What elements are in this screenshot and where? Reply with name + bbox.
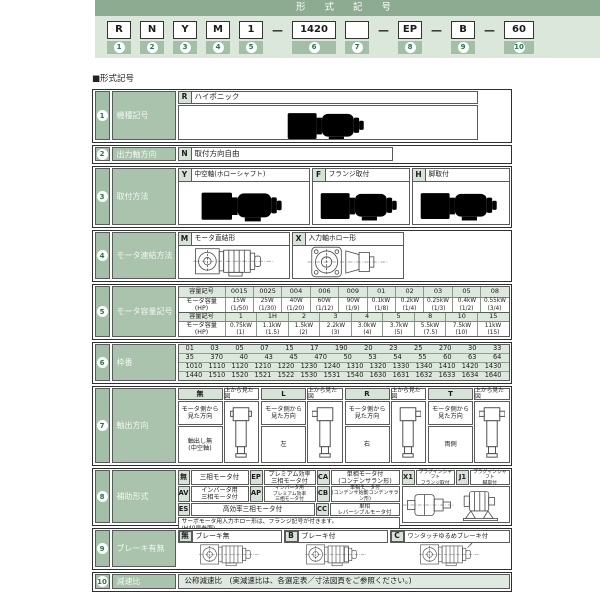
- frame-number: 55: [418, 354, 426, 362]
- option-label: フランジ取付: [326, 169, 409, 181]
- row-label: 軸出方向: [112, 388, 176, 463]
- capacity-power: 0.75kW(1): [225, 322, 257, 336]
- frame-number: 1210: [255, 363, 272, 371]
- row-machine-type: 1 機種記号 R ハイポニック: [92, 89, 512, 143]
- direction-value: 左: [261, 426, 306, 463]
- code-chip: F: [313, 169, 326, 181]
- motor-direct-drawing: [179, 246, 289, 278]
- shaft-option-left: L モータ側から 見た方向 左 上から見た図: [261, 388, 343, 463]
- code-chip: CB: [317, 486, 330, 502]
- plugin-shaft-foot-drawing: [456, 488, 508, 522]
- connection-option-input-hollow: X 入力軸ホロー形: [292, 232, 404, 279]
- capacity-power: 0.55kW(3/4): [480, 298, 508, 312]
- capacity-table: 容量記号 001500250040060090102030508 モータ容量 (…: [178, 286, 510, 337]
- code-unit: EP 8: [398, 21, 422, 54]
- aux-label: インバータ用 三相モータ付: [191, 486, 249, 502]
- frame-number: 1110: [209, 363, 226, 371]
- capacity-code: 08: [480, 287, 508, 296]
- brake-one-touch-drawing: [390, 543, 510, 567]
- capacity-power: 0.2kW(1/4): [395, 298, 423, 312]
- frame-number: 50: [343, 354, 351, 362]
- top-view-header: 上から見た図: [474, 388, 510, 400]
- hyponic-gearmotor-photo: [178, 105, 478, 140]
- code-box: N: [140, 21, 164, 39]
- frame-number: 1520: [232, 372, 249, 380]
- code-unit: 1420 6: [292, 21, 336, 54]
- connection-option-direct: M モータ直結形: [178, 232, 290, 279]
- row-number-cell: 1: [95, 91, 110, 140]
- frame-number: 1340: [416, 363, 433, 371]
- frame-number: 1120: [232, 363, 249, 371]
- code-description: ハイポニック: [192, 91, 478, 104]
- capacity-code: 8: [414, 313, 446, 322]
- model-code-line: R 1 N 2 Y 3 M 4 1 5 — 1420 6 7 — EP 8 — …: [95, 16, 600, 58]
- aux-label: 単相モータ付 (コンデンサラン形): [331, 470, 400, 485]
- row-label: 補助形式: [112, 470, 176, 523]
- code-box: 1420: [292, 21, 336, 39]
- frame-number: 1634: [462, 372, 479, 380]
- code-chip: AV: [178, 486, 190, 502]
- top-view-diagram-none: [224, 401, 260, 463]
- code-box: EP: [398, 21, 422, 39]
- capacity-power: 7.5kW(10): [445, 322, 477, 336]
- frame-number: 23: [389, 345, 397, 353]
- row-number-cell: 3: [95, 168, 110, 225]
- top-view-diagram-both: [474, 401, 510, 463]
- capacity-code-header-1: 容量記号 001500250040060090102030508: [179, 287, 509, 296]
- code-unit: 60 10: [504, 21, 534, 54]
- row-brake: 9 ブレーキ有無 無 ブレーキ無 B ブレーキ付: [92, 528, 512, 570]
- capacity-code: 15: [477, 313, 509, 322]
- code-number-badge: 4: [206, 41, 230, 54]
- code-box: 60: [504, 21, 534, 39]
- row-motor-connection: 4 モータ連結方法 M モータ直結形 X 入力軸ホロー形: [92, 230, 512, 282]
- frame-number: 1240: [324, 363, 341, 371]
- direction-value: 右: [345, 426, 390, 463]
- frame-number: 53: [368, 354, 376, 362]
- frame-number: 370: [210, 354, 223, 362]
- plugin-shaft-drawings: [402, 486, 510, 523]
- row-number-cell: 2: [95, 147, 110, 161]
- frame-number: 1330: [393, 363, 410, 371]
- frame-number: 1631: [393, 372, 410, 380]
- brake-option-one-touch: C ワンタッチゆるめブレーキ付: [390, 530, 510, 567]
- row-number-cell: 10: [95, 574, 110, 589]
- row-number-cell: 4: [95, 232, 110, 279]
- capacity-power: 60W(1/12): [310, 298, 338, 312]
- option-label: ブレーキ付: [298, 531, 387, 542]
- capacity-code: 10: [445, 313, 477, 322]
- shaft-option-both: T モータ側から 見た方向 両側 上から見た図: [428, 388, 510, 463]
- direction-note: モータ側から 見た方向: [261, 401, 306, 425]
- code-box: M: [206, 21, 230, 39]
- top-view-diagram-left: [307, 401, 343, 463]
- code-chip: 無: [178, 388, 223, 400]
- capacity-code-header-2: 容量記号 11H234581015: [179, 312, 509, 322]
- capacity-code: 004: [281, 287, 309, 296]
- code-chip: X1: [402, 470, 415, 485]
- capacity-code: 02: [395, 287, 423, 296]
- capacity-power: 15W(1/50): [225, 298, 253, 312]
- row-number-cell: 5: [95, 286, 110, 337]
- code-chip: M: [179, 233, 192, 245]
- top-view-header: 上から見た図: [224, 388, 260, 400]
- row-label: 出力軸方向: [112, 147, 176, 161]
- frame-number: 33: [493, 345, 501, 353]
- code-box-empty: [345, 21, 369, 39]
- row-shaft-output-direction: 7 軸出方向 無 モータ側から 見た方向 軸出し無 (中空軸) 上から見た図: [92, 386, 512, 466]
- code-chip: CA: [317, 470, 330, 485]
- frame-number: 40: [240, 354, 248, 362]
- aux-label: 単相モータ付 (コンデンサ始動コンデンサラン形): [331, 486, 400, 502]
- code-box: B: [451, 21, 475, 39]
- row-number-cell: 7: [95, 388, 110, 463]
- aux-label: プラグインシャフト 脚取付: [470, 470, 510, 485]
- row-mounting-method: 3 取付方法 Y 中空軸(ホローシャフト) F フランジ取付: [92, 166, 512, 228]
- capacity-code: 0015: [225, 287, 253, 296]
- capacity-power: 1.5kW(2): [288, 322, 320, 336]
- frame-number: 1310: [347, 363, 364, 371]
- code-number-badge: 8: [398, 41, 422, 54]
- capacity-code: 009: [338, 287, 366, 296]
- direction-note: モータ側から 見た方向: [178, 401, 223, 425]
- frame-number: 1420: [462, 363, 479, 371]
- frame-number: 1531: [324, 372, 341, 380]
- frame-number: 20: [364, 345, 372, 353]
- shaft-option-none: 無 モータ側から 見た方向 軸出し無 (中空軸) 上から見た図: [178, 388, 260, 463]
- frame-number: 17: [310, 345, 318, 353]
- shaft-option-right: R モータ側から 見た方向 右 上から見た図: [345, 388, 427, 463]
- aux-label: 単相 レバーシブルモータ付: [330, 503, 400, 516]
- brake-option-none: 無 ブレーキ無: [178, 530, 282, 567]
- code-chip: CC: [316, 503, 329, 516]
- frame-number: 1320: [370, 363, 387, 371]
- capacity-power: 0.4kW(1/2): [452, 298, 480, 312]
- frame-number: 1430: [485, 363, 502, 371]
- code-number-badge: 2: [140, 41, 164, 54]
- frame-number: 15: [285, 345, 293, 353]
- code-unit: M 4: [206, 21, 230, 54]
- page-title: 形 式 記 号: [95, 0, 600, 16]
- capacity-code: 2: [288, 313, 320, 322]
- frame-number: 270: [439, 345, 452, 353]
- code-chip: J1: [456, 470, 469, 485]
- option-label: 入力軸ホロー形: [306, 233, 403, 245]
- capacity-power: 25W(1/30): [253, 298, 281, 312]
- direction-note: モータ側から 見た方向: [428, 401, 473, 425]
- frame-number: 35: [186, 354, 194, 362]
- code-box: R: [107, 21, 131, 39]
- foot-mount-photo: [413, 182, 509, 224]
- code-chip: ES: [178, 503, 190, 516]
- frame-number: 470: [314, 354, 327, 362]
- code-chip: Y: [179, 169, 192, 181]
- section-title: ■形式記号: [92, 75, 600, 85]
- frame-number: 45: [289, 354, 297, 362]
- direction-note: モータ側から 見た方向: [345, 401, 390, 425]
- aux-label: インバータ用 プレミアム効率 三相モータ付: [264, 486, 316, 502]
- code-chip: R: [345, 388, 390, 400]
- option-label: 中空軸(ホローシャフト): [192, 169, 309, 181]
- capacity-power: 11kW(15): [477, 322, 509, 336]
- capacity-code: 0025: [253, 287, 281, 296]
- code-dash: —: [378, 21, 389, 38]
- frame-number: 03: [210, 345, 218, 353]
- frame-number: 1230: [301, 363, 318, 371]
- input-hollow-drawing: [293, 246, 403, 278]
- frame-number: 190: [335, 345, 348, 353]
- aux-label: 高効率三相モータ付: [191, 503, 315, 516]
- capacity-power: 3.0kW(4): [351, 322, 383, 336]
- option-label: ワンタッチゆるめブレーキ付: [404, 531, 509, 542]
- direction-value: 軸出し無 (中空軸): [178, 426, 223, 463]
- row-output-shaft-direction: 2 出力軸方向 N 取付方向自由: [92, 145, 512, 164]
- frame-number: 01: [186, 345, 194, 353]
- row-motor-capacity-code: 5 モータ容量記号 容量記号 0015002500400600901020305…: [92, 284, 512, 340]
- brake-option-with: B ブレーキ付: [284, 530, 388, 567]
- reduction-ratio-text: 公称減速比 (実減速比は、各選定表／寸法図頁をご参照ください。): [178, 574, 510, 589]
- mount-option-flange: F フランジ取付: [312, 168, 410, 225]
- code-number-badge: 6: [292, 41, 336, 54]
- top-view-header: 上から見た図: [391, 388, 427, 400]
- brake-with-drawing: [284, 543, 388, 567]
- code-number-badge: 9: [451, 41, 475, 54]
- frame-number: 1640: [485, 372, 502, 380]
- frame-number: 1521: [255, 372, 272, 380]
- frame-number: 30: [468, 345, 476, 353]
- row-label: 枠番: [112, 344, 176, 381]
- frame-number: 1633: [439, 372, 456, 380]
- frame-number: 1220: [278, 363, 295, 371]
- capacity-code: 006: [310, 287, 338, 296]
- frame-number: 1510: [209, 372, 226, 380]
- capacity-power-row-1: モータ容量 (HP) 15W(1/50)25W(1/30)40W(1/20)60…: [179, 297, 509, 312]
- aux-label: 三相モータ付: [191, 470, 249, 485]
- row-frame-number: 6 枠番 0103050715171902023252703033 353704…: [92, 342, 512, 384]
- aux-label: プレミアム効率 三相モータ付: [264, 470, 316, 485]
- capacity-code: 1: [225, 313, 257, 322]
- code-box: 1: [239, 21, 263, 39]
- frame-number: 64: [493, 354, 501, 362]
- capacity-power-row-2: モータ容量 (HP) 0.75kW(1)1.1kW(1.5)1.5kW(2)2.…: [179, 321, 509, 336]
- code-chip: R: [178, 91, 192, 104]
- code-number-badge: 7: [345, 41, 369, 54]
- top-view-header: 上から見た図: [307, 388, 343, 400]
- row-label: モータ連結方法: [112, 232, 176, 279]
- aux-label: プラグインシャフト フランジ取付: [416, 470, 456, 485]
- code-unit: N 2: [140, 21, 164, 54]
- top-view-diagram-right: [391, 401, 427, 463]
- mount-option-hollow-shaft: Y 中空軸(ホローシャフト): [178, 168, 310, 225]
- code-description: 取付方向自由: [192, 147, 393, 161]
- hollow-shaft-photo: [179, 182, 309, 224]
- capacity-power: 40W(1/20): [281, 298, 309, 312]
- flange-mount-photo: [313, 182, 409, 224]
- code-number-badge: 3: [173, 41, 197, 54]
- capacity-code: 4: [351, 313, 383, 322]
- code-unit: Y 3: [173, 21, 197, 54]
- option-label: 脚取付: [426, 169, 509, 181]
- code-number-badge: 1: [107, 41, 131, 54]
- capacity-code: 5: [382, 313, 414, 322]
- frame-number: 1010: [186, 363, 203, 371]
- frame-number: 1440: [186, 372, 203, 380]
- frame-number: 1522: [278, 372, 295, 380]
- row-number-cell: 6: [95, 344, 110, 381]
- frame-number-list: 0103050715171902023252703033 35370404345…: [178, 344, 510, 381]
- capacity-power: 5.5kW(7.5): [414, 322, 446, 336]
- capacity-power: 0.1kW(1/8): [367, 298, 395, 312]
- capacity-power: 2.2kW(3): [319, 322, 351, 336]
- code-unit: R 1: [107, 21, 131, 54]
- code-dash: —: [272, 21, 283, 38]
- row-auxiliary-type: 8 補助形式 無 三相モータ付 EP プレミアム効率 三相モータ付 CA 単相モ…: [92, 468, 512, 526]
- row-label: ブレーキ有無: [112, 530, 176, 567]
- model-code-table: 1 機種記号 R ハイポニック 2 出力軸方向 N 取付方向自由: [92, 89, 512, 592]
- capacity-power: 3.7kW(5): [382, 322, 414, 336]
- code-unit: 7: [345, 21, 369, 54]
- code-chip: 無: [178, 470, 190, 485]
- option-label: ブレーキ無: [192, 531, 281, 542]
- capacity-code: 1H: [256, 313, 288, 322]
- code-chip: H: [413, 169, 426, 181]
- brake-none-drawing: [178, 543, 282, 567]
- frame-number: 1530: [301, 372, 318, 380]
- code-box: Y: [173, 21, 197, 39]
- code-chip: L: [261, 388, 306, 400]
- capacity-code: 05: [452, 287, 480, 296]
- mount-option-foot: H 脚取付: [412, 168, 510, 225]
- frame-number: 1410: [439, 363, 456, 371]
- frame-number: 43: [264, 354, 272, 362]
- frame-number: 1632: [416, 372, 433, 380]
- direction-value: 両側: [428, 426, 473, 463]
- code-chip: N: [178, 147, 192, 161]
- capacity-code: 01: [367, 287, 395, 296]
- code-unit: B 9: [451, 21, 475, 54]
- row-label: 減速比: [112, 574, 176, 589]
- code-dash: —: [431, 21, 442, 38]
- code-number-badge: 10: [504, 41, 534, 54]
- code-chip: C: [391, 531, 404, 542]
- option-label: モータ直結形: [192, 233, 289, 245]
- code-chip: EP: [250, 470, 263, 485]
- code-chip: X: [293, 233, 306, 245]
- row-number-cell: 8: [95, 470, 110, 523]
- plugin-shaft-flange-drawing: [403, 488, 455, 522]
- code-chip: B: [285, 531, 298, 542]
- capacity-code: 3: [319, 313, 351, 322]
- frame-number: 54: [393, 354, 401, 362]
- capacity-power: 90W(1/9): [338, 298, 366, 312]
- row-number-cell: 9: [95, 530, 110, 567]
- capacity-power: 0.25kW(1/3): [423, 298, 451, 312]
- row-reduction-ratio: 10 減速比 公称減速比 (実減速比は、各選定表／寸法図頁をご参照ください。): [92, 572, 512, 592]
- frame-number: 05: [235, 345, 243, 353]
- code-chip: AP: [250, 486, 263, 502]
- capacity-code: 03: [423, 287, 451, 296]
- code-dash: —: [484, 21, 495, 38]
- row-label: 機種記号: [112, 91, 176, 140]
- frame-number: 63: [468, 354, 476, 362]
- frame-number: 07: [260, 345, 268, 353]
- frame-number: 60: [443, 354, 451, 362]
- code-number-badge: 5: [239, 41, 263, 54]
- capacity-power: 1.1kW(1.5): [256, 322, 288, 336]
- row-label: 取付方法: [112, 168, 176, 225]
- code-chip: T: [428, 388, 473, 400]
- frame-number: 1630: [370, 372, 387, 380]
- frame-number: 1540: [347, 372, 364, 380]
- row-label: モータ容量記号: [112, 286, 176, 337]
- code-unit: 1 5: [239, 21, 263, 54]
- code-chip: 無: [179, 531, 192, 542]
- frame-number: 25: [414, 345, 422, 353]
